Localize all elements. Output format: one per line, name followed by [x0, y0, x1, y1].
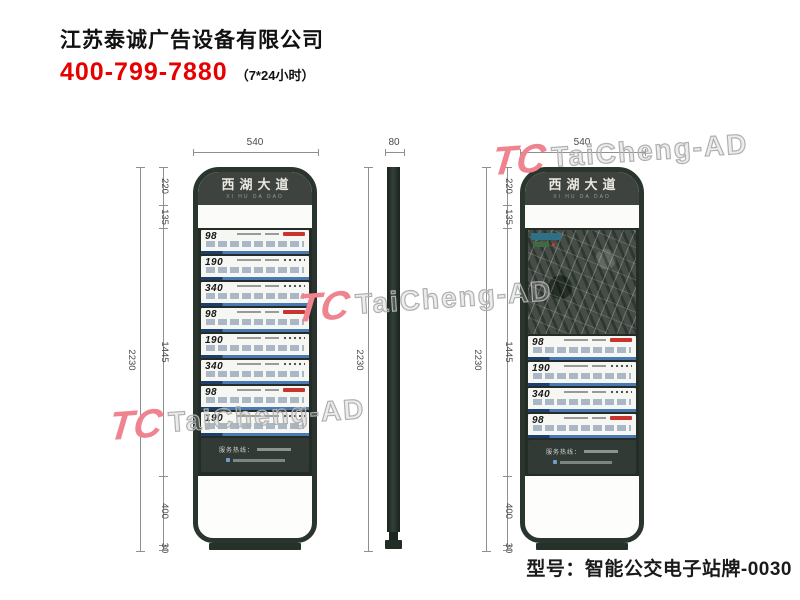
dimension-chain: 220 135 1445 400 30	[159, 167, 168, 550]
sign-side-foot	[385, 540, 402, 549]
map-label-chip	[531, 233, 561, 240]
dimension-total-label: 2230	[471, 330, 483, 390]
sign-header: 西湖大道 XI HU DA DAO	[198, 172, 312, 205]
dimension-line-width	[520, 149, 646, 156]
dimension-segment: 30	[159, 545, 168, 550]
segment-label: 1445	[158, 322, 170, 382]
route-dots	[283, 258, 305, 262]
model-caption: 型号：智能公交电子站牌-0030	[518, 554, 792, 581]
route-row: 190	[528, 362, 636, 386]
route-progress-bar	[201, 251, 309, 254]
hotline-hours: （7*24小时）	[236, 65, 315, 84]
dimension-side-width: 80	[374, 137, 414, 148]
service-hotline-number-bar	[257, 448, 291, 451]
satellite-map	[528, 230, 636, 334]
route-dots	[283, 336, 305, 340]
service-hotline: 服务热线：	[528, 440, 636, 474]
hotline-row: 400-799-7880 （7*24小时）	[60, 58, 324, 87]
route-row: 190	[201, 256, 309, 280]
route-stations	[206, 397, 304, 403]
service-hotline: 服务热线：	[201, 438, 309, 472]
route-red-badge	[283, 310, 305, 314]
dimension-front-width: 540	[193, 137, 317, 148]
footer-company-bar	[560, 461, 612, 464]
route-row: 98	[201, 386, 309, 410]
sign-header: 西湖大道 XI HU DA DAO	[525, 172, 639, 205]
route-row: 98	[528, 336, 636, 360]
segment-label: 1445	[502, 322, 514, 382]
segment-label: 30	[502, 518, 514, 578]
hotline-number: 400-799-7880	[60, 58, 228, 87]
route-row: 98	[201, 230, 309, 254]
route-progress-bar	[528, 383, 636, 386]
service-hotline-label: 服务热线：	[219, 445, 254, 454]
dimension-side-height: 2230	[364, 167, 373, 552]
bus-stop-sign-map-view: 西湖大道 XI HU DA DAO 98 190 340 98 服务热线：	[520, 167, 644, 543]
dimension-total-height: 2230	[136, 167, 145, 552]
route-row: 98	[528, 414, 636, 438]
sign-base	[209, 543, 301, 550]
route-progress-bar	[528, 409, 636, 412]
sign-side-profile	[387, 167, 400, 532]
dimension-segment: 135	[503, 205, 512, 228]
route-red-badge	[610, 338, 632, 342]
dimension-side-height-label: 2230	[353, 330, 365, 390]
route-row: 190	[201, 334, 309, 358]
route-dots	[283, 362, 305, 366]
sign-pinyin: XI HU DA DAO	[198, 194, 312, 200]
sign-base	[536, 543, 628, 550]
dimension-segment: 30	[503, 545, 512, 550]
footer-icon	[553, 460, 557, 464]
route-dots	[610, 390, 632, 394]
route-progress-bar	[528, 357, 636, 360]
route-stations	[533, 373, 631, 379]
route-progress-bar	[201, 381, 309, 384]
route-row: 340	[201, 282, 309, 306]
sign-pinyin: XI HU DA DAO	[525, 194, 639, 200]
sign-title: 西湖大道	[198, 178, 312, 192]
route-red-badge	[610, 416, 632, 420]
route-progress-bar	[201, 355, 309, 358]
route-stations	[206, 423, 304, 429]
route-stations	[206, 267, 304, 273]
service-hotline-number-bar	[584, 450, 618, 453]
map-park-chip	[533, 242, 549, 247]
watermark: TC TaiCheng-AD	[295, 271, 554, 329]
route-row: 340	[528, 388, 636, 412]
route-dots	[283, 414, 305, 418]
route-row: 340	[201, 360, 309, 384]
dimension-segment: 135	[159, 205, 168, 228]
route-progress-bar	[201, 433, 309, 436]
dimension-segment: 1445	[159, 228, 168, 476]
route-stations	[206, 241, 304, 247]
route-stations	[533, 399, 631, 405]
route-progress-bar	[201, 329, 309, 332]
route-red-badge	[283, 388, 305, 392]
route-progress-bar	[201, 303, 309, 306]
segment-label: 30	[158, 518, 170, 578]
dimension-line-side-width	[385, 149, 405, 156]
dimension-line-width	[193, 149, 319, 156]
route-stations	[206, 371, 304, 377]
dimension-segment: 1445	[503, 228, 512, 476]
route-list: 98 190 340 98 服务热线：	[525, 228, 639, 476]
sign-side-neck	[389, 532, 398, 540]
route-dots	[283, 284, 305, 288]
service-hotline-label: 服务热线：	[546, 447, 581, 456]
footer-icon	[226, 458, 230, 462]
route-stations	[533, 425, 631, 431]
blank-band	[198, 205, 312, 228]
route-progress-bar	[201, 277, 309, 280]
dimension-total-height: 2230	[482, 167, 491, 552]
dimension-total-label: 2230	[125, 330, 137, 390]
company-name: 江苏泰诚广告设备有限公司	[60, 24, 324, 54]
company-header: 江苏泰诚广告设备有限公司 400-799-7880 （7*24小时）	[60, 24, 324, 87]
route-stations	[533, 347, 631, 353]
dimension-chain: 220 135 1445 400 30	[503, 167, 512, 550]
route-row: 98	[201, 308, 309, 332]
route-list: 98 190 340 98 190 340 98 190 服务热线：	[198, 228, 312, 476]
map-marker	[552, 243, 555, 246]
route-dots	[610, 364, 632, 368]
page: 江苏泰诚广告设备有限公司 400-799-7880 （7*24小时） TC Ta…	[0, 0, 800, 600]
route-progress-bar	[201, 407, 309, 410]
sign-title: 西湖大道	[525, 178, 639, 192]
blank-band	[525, 205, 639, 228]
route-stations	[206, 345, 304, 351]
footer-company-bar	[233, 459, 285, 462]
route-progress-bar	[528, 435, 636, 438]
route-stations	[206, 319, 304, 325]
route-row: 190	[201, 412, 309, 436]
bus-stop-sign-front: 西湖大道 XI HU DA DAO 98 190 340 98 190 340 …	[193, 167, 317, 543]
route-stations	[206, 293, 304, 299]
dimension-front-width: 540	[520, 137, 644, 148]
route-red-badge	[283, 232, 305, 236]
